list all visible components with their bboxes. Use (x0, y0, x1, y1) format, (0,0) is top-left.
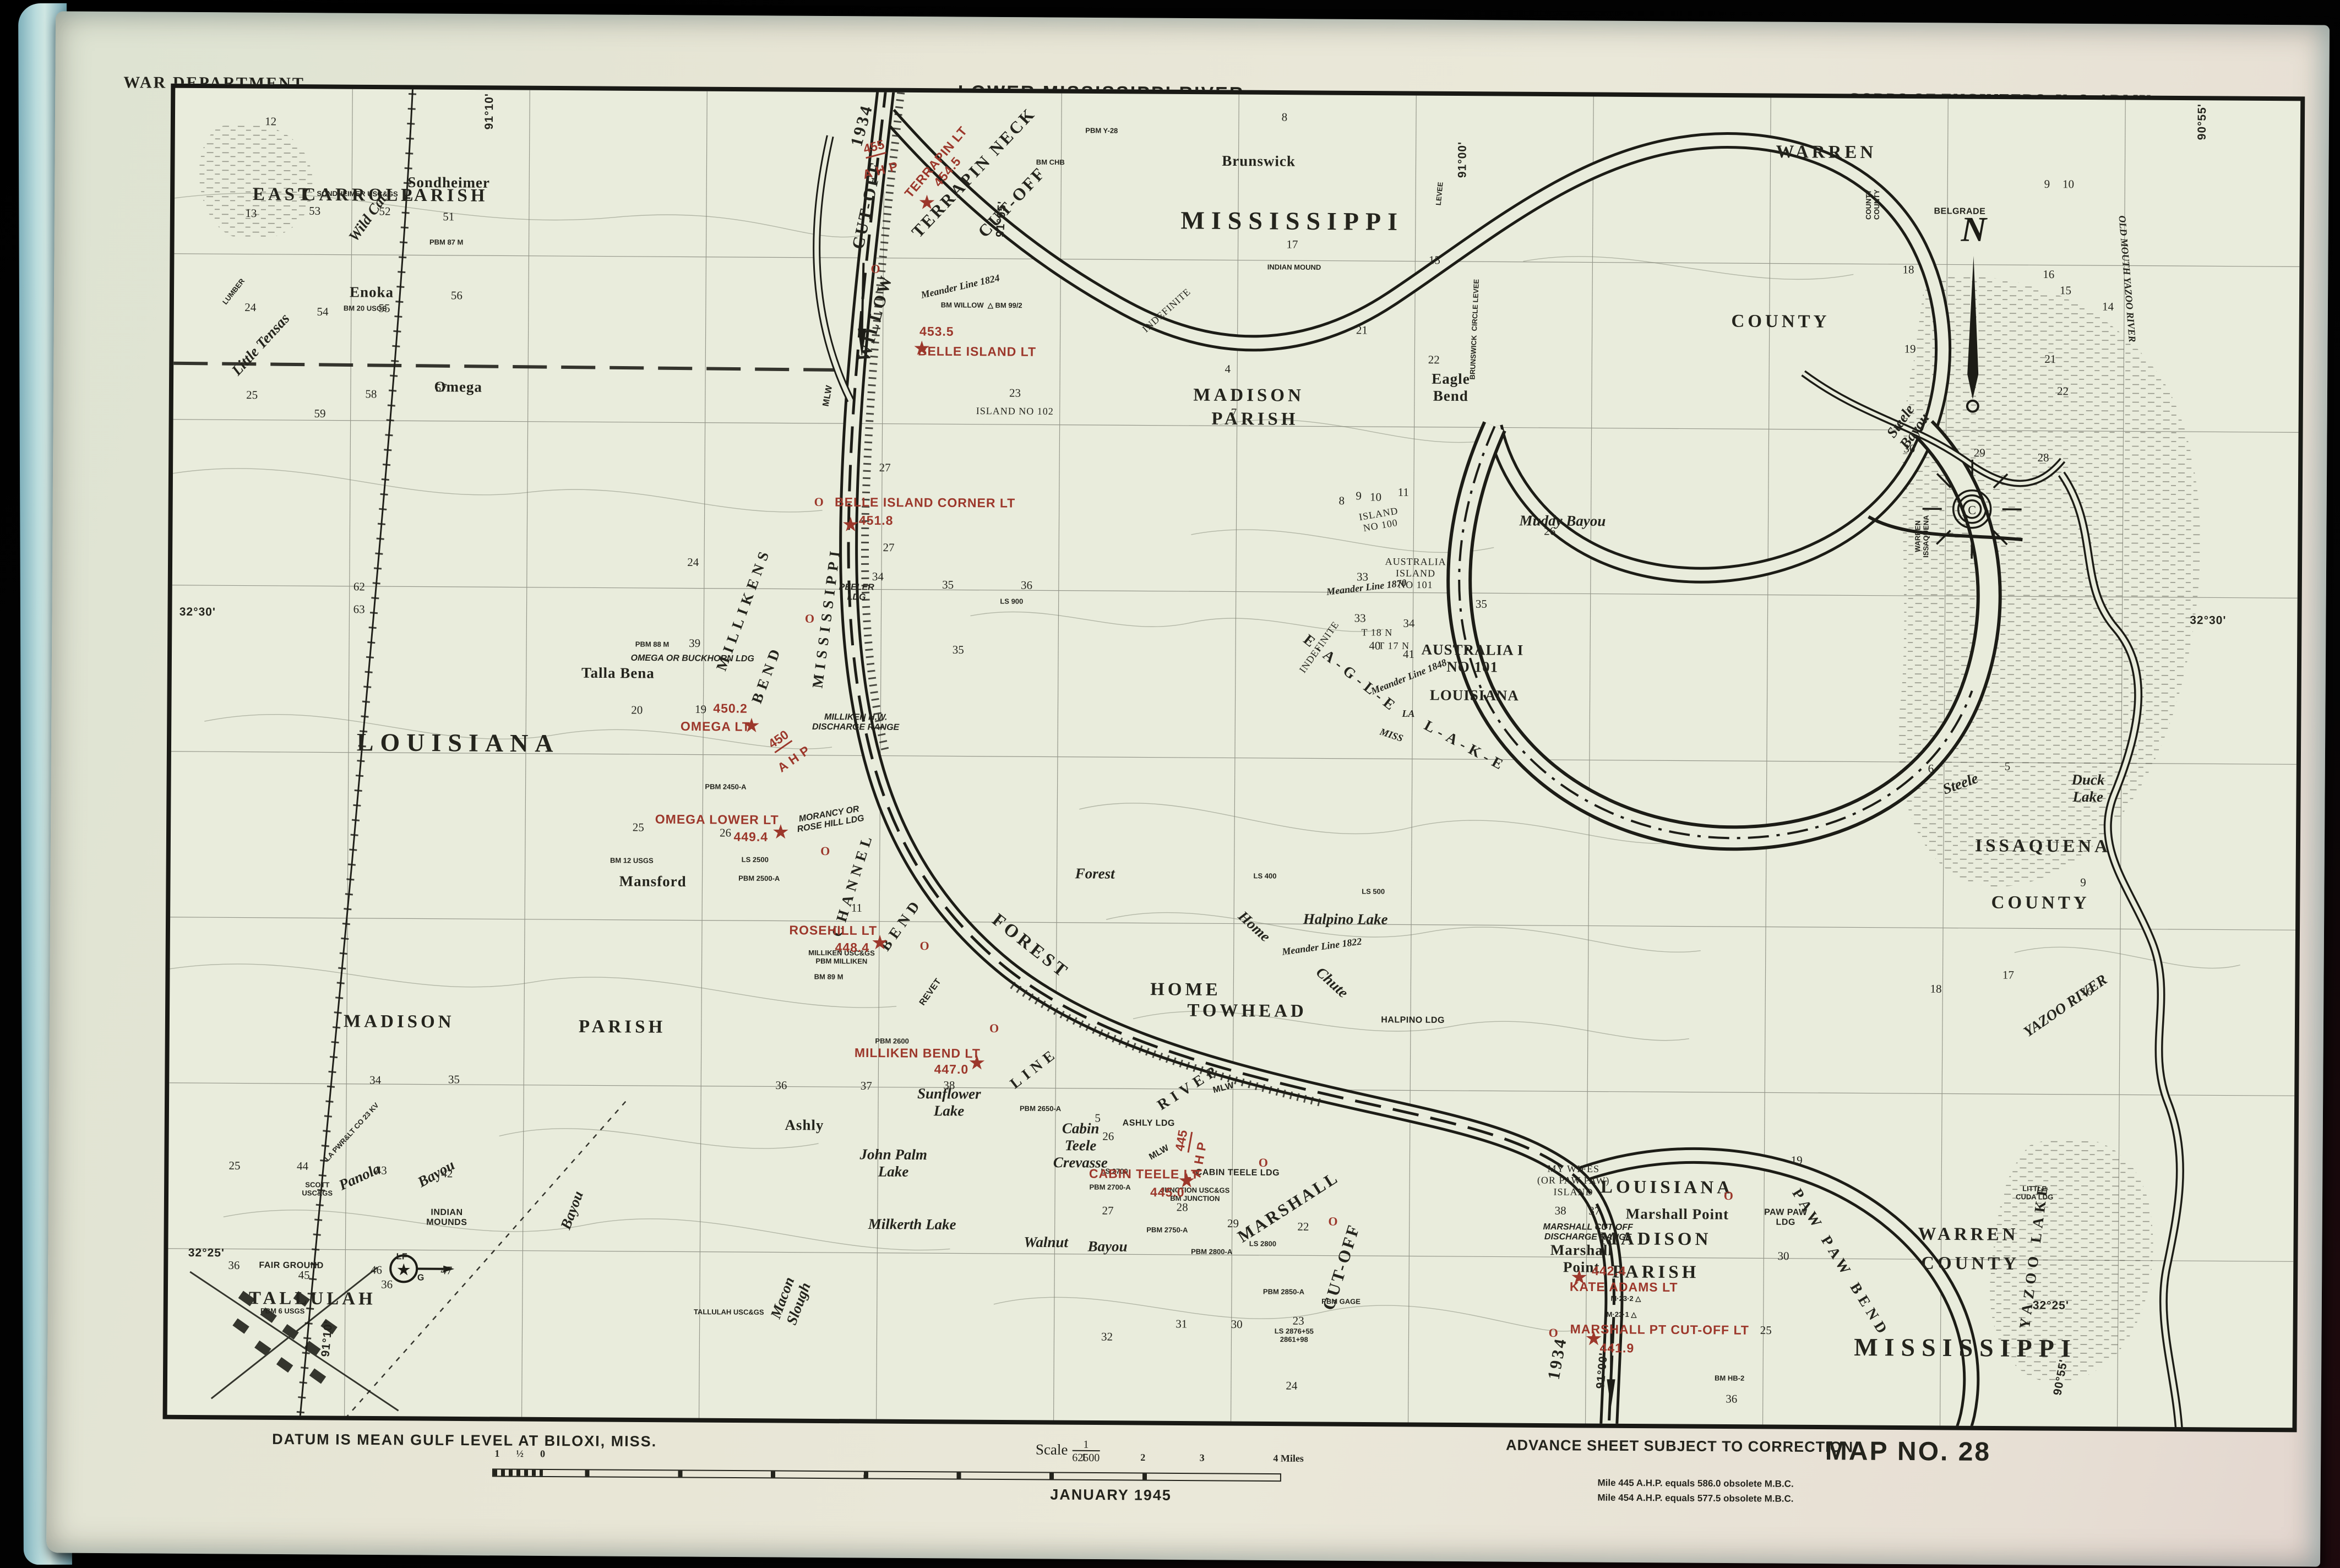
photo-background: WAR DEPARTMENT LOWER MISSISSIPPI RIVER C… (0, 0, 2340, 1568)
map-label: 0 (540, 1449, 545, 1460)
map-number: MAP NO. 28 (1825, 1436, 1991, 1467)
map-label: 1 (1081, 1452, 1086, 1463)
map-label: 2 (1140, 1452, 1145, 1463)
map-page: WAR DEPARTMENT LOWER MISSISSIPPI RIVER C… (46, 11, 2330, 1566)
map-label: 4 Miles (1273, 1453, 1304, 1464)
map-label: 3 (1200, 1452, 1205, 1464)
map-label: 1 (494, 1448, 499, 1460)
scale-bar-ticks: 1½01234 Miles (46, 11, 2330, 1566)
map-label: ½ (516, 1448, 524, 1460)
advance-sheet-note: ADVANCE SHEET SUBJECT TO CORRECTION (1506, 1437, 1853, 1456)
mileage-notes: Mile 445 A.H.P. equals 586.0 obsolete M.… (1597, 1476, 1794, 1506)
map-date: JANUARY 1945 (1050, 1487, 1172, 1504)
